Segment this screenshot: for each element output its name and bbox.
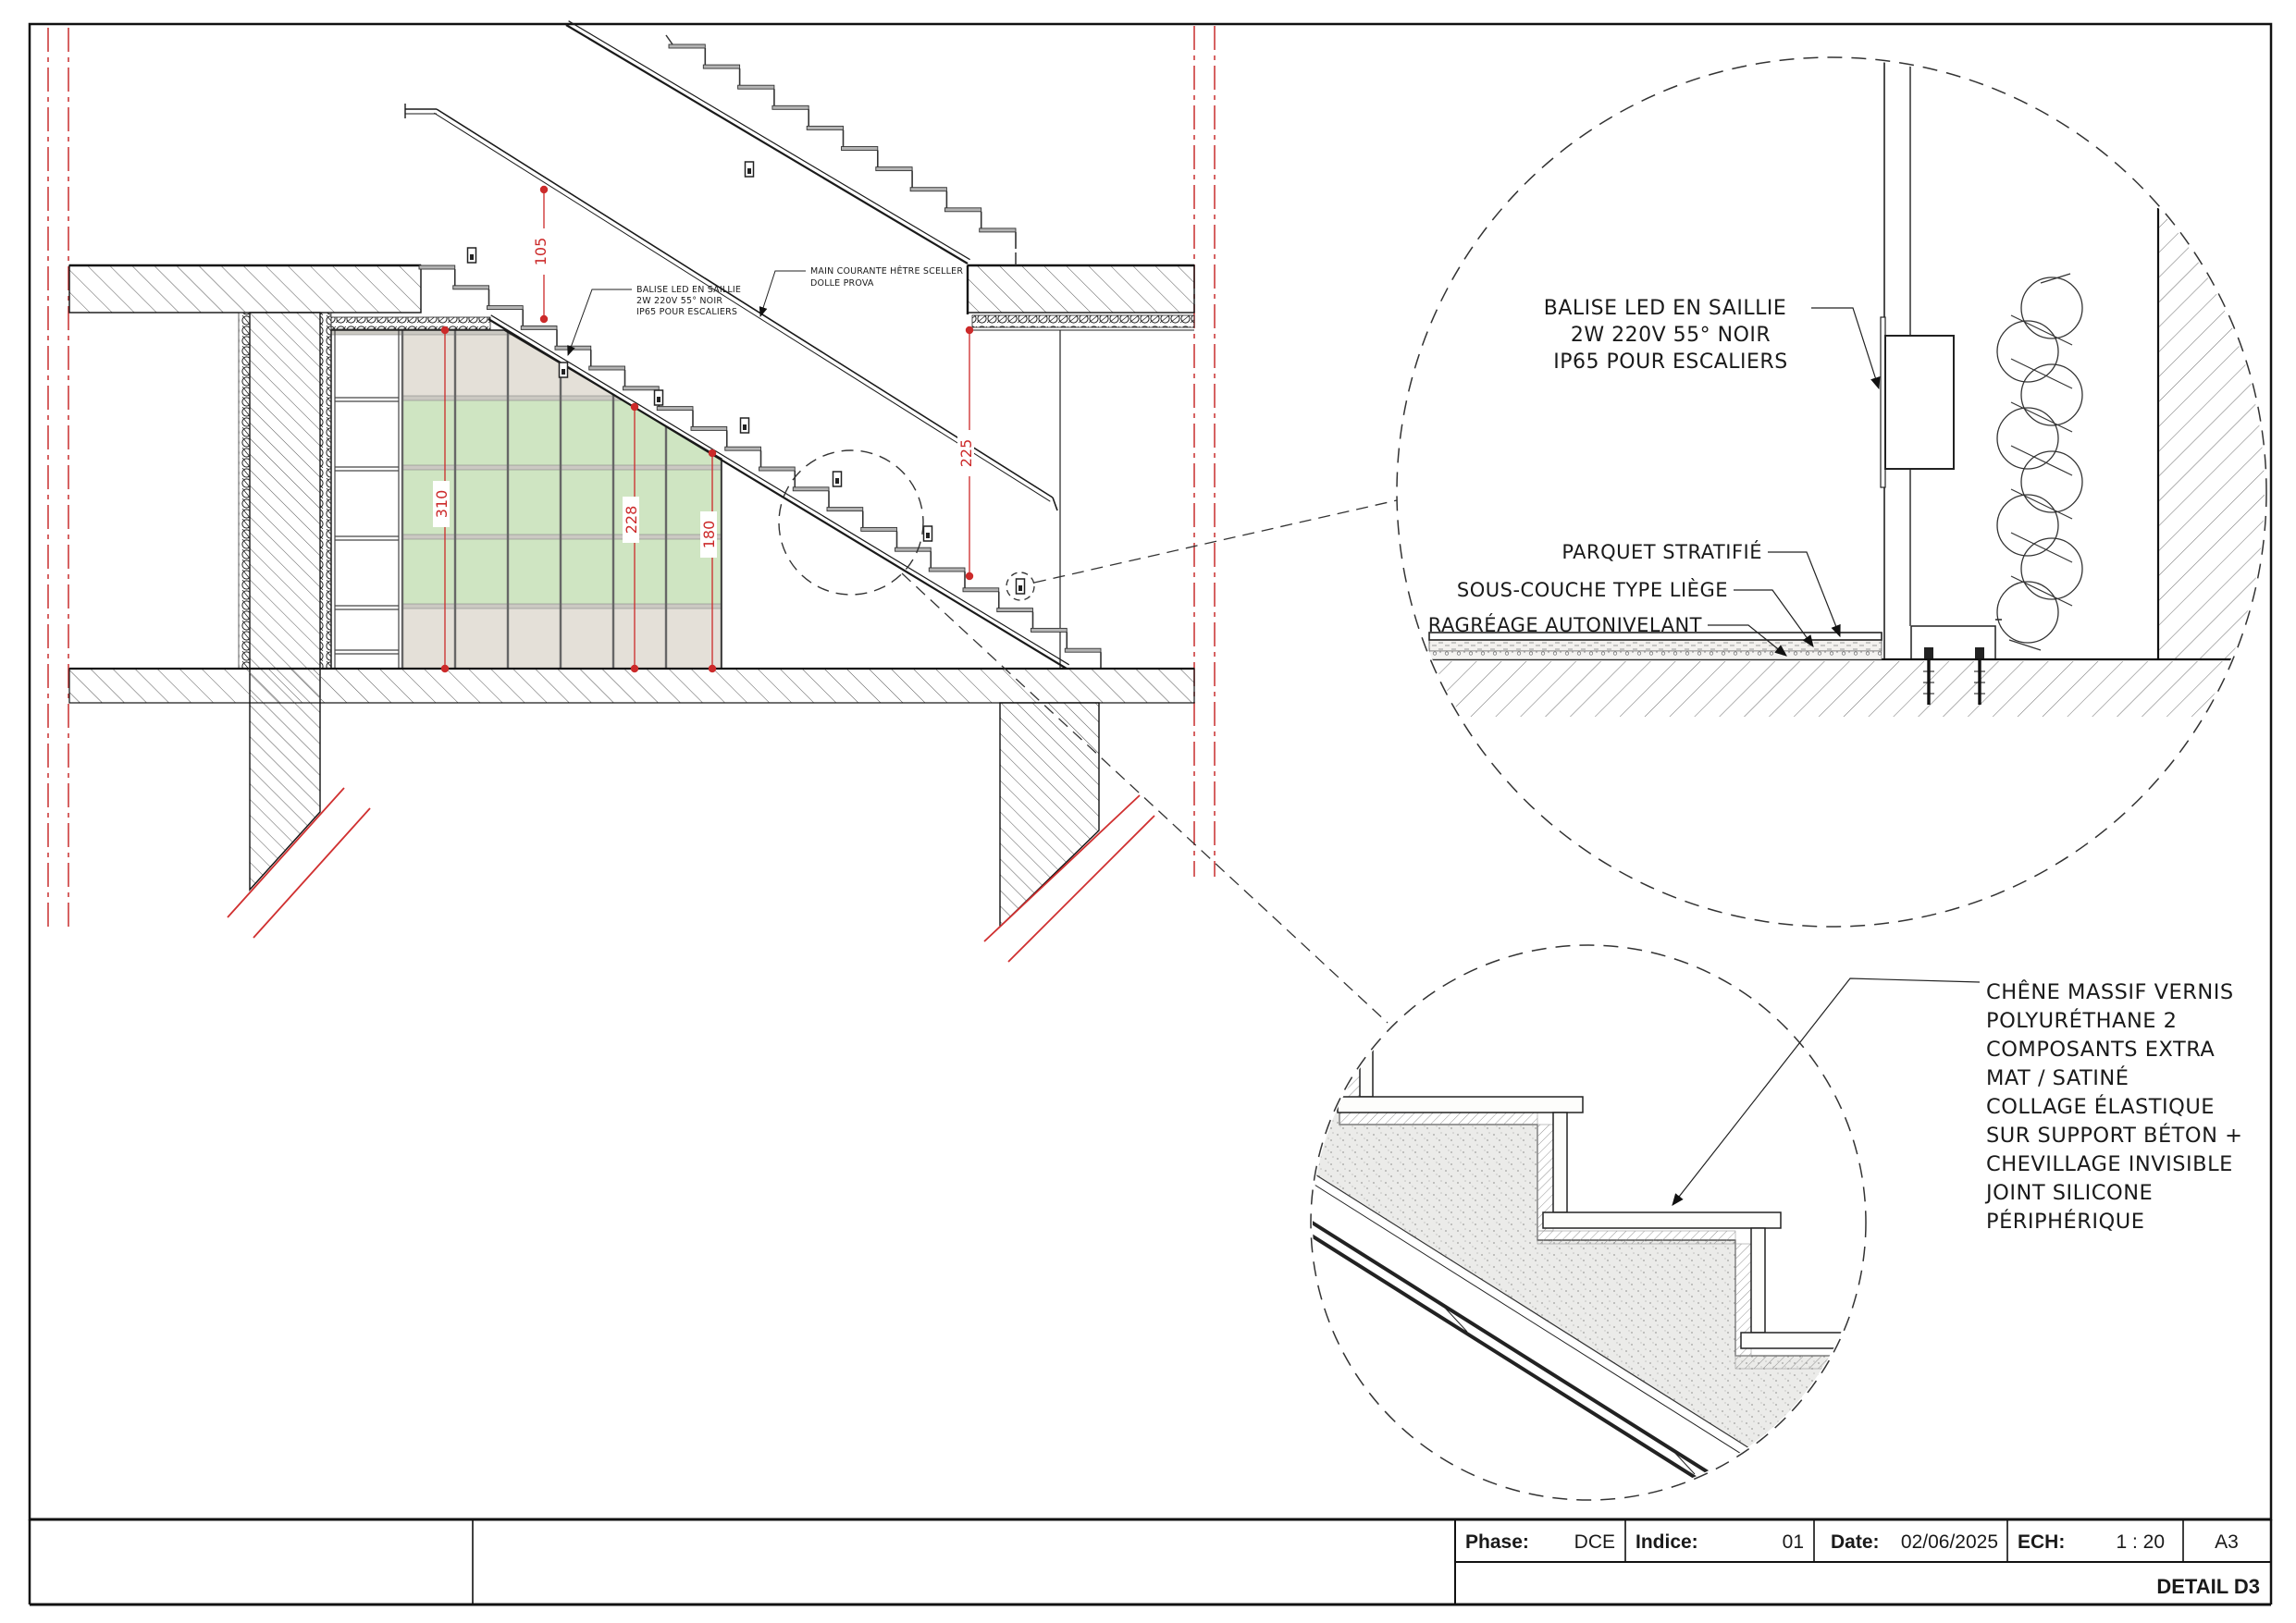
- date-label: Date:: [1831, 1531, 1880, 1553]
- detail-drawing-canvas: 310 228 180 105 225 BALISE LED EN SAILLI…: [0, 0, 2296, 1623]
- note-balise-line3: IP65 POUR ESCALIERS: [636, 307, 737, 317]
- note-mc-line1: MAIN COURANTE HÊTRE SCELLER: [810, 265, 963, 277]
- layer-sous-couche: [1429, 640, 1882, 651]
- label-chene-line5: COLLAGE ÉLASTIQUE: [1986, 1093, 2215, 1119]
- detail-floor-hatch: [1420, 661, 2253, 717]
- tread-board: [1338, 1097, 1583, 1113]
- dim-label-105: 105: [532, 238, 549, 266]
- led-balise-symbol: [655, 390, 663, 405]
- led-balise-symbol: [468, 248, 476, 263]
- label-chene-line1: CHÊNE MASSIF VERNIS: [1986, 978, 2234, 1004]
- label-chene-line3: COMPOSANTS EXTRA: [1986, 1038, 2215, 1062]
- date-value: 02/06/2025: [1901, 1531, 1998, 1553]
- layer-ragreage: [1429, 651, 1882, 659]
- lower-slab: [69, 669, 1194, 703]
- tread-board: [1543, 1212, 1781, 1228]
- led-body: [1885, 336, 1954, 469]
- note-mc-line2: DOLLE PROVA: [810, 278, 874, 289]
- drawing-title: DETAIL D3: [2156, 1575, 2260, 1598]
- label-sous-couche: SOUS-COUCHE TYPE LIÈGE: [1457, 578, 1728, 601]
- label-chene-line8: JOINT SILICONE: [1984, 1181, 2153, 1205]
- label-balise-line3: IP65 POUR ESCALIERS: [1553, 350, 1787, 374]
- led-balise-symbol: [1017, 579, 1025, 594]
- label-chene-line4: MAT / SATINÉ: [1986, 1064, 2129, 1090]
- insulation-band: [331, 317, 490, 329]
- led-balise-symbol: [741, 418, 749, 433]
- label-balise-line2: 2W 220V 55° NOIR: [1571, 324, 1771, 347]
- riser-board: [1751, 1228, 1765, 1333]
- ech-value: 1 : 20: [2116, 1531, 2165, 1553]
- label-chene-line9: PÉRIPHÉRIQUE: [1986, 1208, 2144, 1234]
- indice-label: Indice:: [1636, 1531, 1698, 1553]
- phase-label: Phase:: [1465, 1531, 1529, 1553]
- label-chene-line6: SUR SUPPORT BÉTON +: [1986, 1122, 2242, 1148]
- left-wall: [239, 313, 331, 890]
- phase-value: DCE: [1574, 1531, 1615, 1553]
- format-value: A3: [2215, 1531, 2239, 1553]
- upper-left-slab: [69, 265, 421, 313]
- label-ragreage: RAGRÉAGE AUTONIVELANT: [1428, 613, 1702, 636]
- riser-board: [1553, 1113, 1567, 1212]
- ech-label: ECH:: [2018, 1531, 2065, 1553]
- sheet-background: [0, 0, 2296, 1623]
- label-chene-line7: CHEVILLAGE INVISIBLE: [1986, 1152, 2233, 1176]
- led-balise-symbol: [560, 363, 568, 377]
- dim-label-225: 225: [957, 439, 975, 468]
- label-balise-line1: BALISE LED EN SAILLIE: [1544, 297, 1787, 320]
- note-balise-line2: 2W 220V 55° NOIR: [636, 296, 722, 306]
- label-parquet: PARQUET STRATIFIÉ: [1562, 540, 1762, 563]
- insulation-band: [972, 315, 1194, 327]
- drawing-sheet: 310 228 180 105 225 BALISE LED EN SAILLI…: [0, 0, 2296, 1623]
- led-balise-symbol: [833, 472, 842, 486]
- led-balise-symbol: [924, 526, 932, 541]
- indice-value: 01: [1783, 1531, 1804, 1553]
- insulation-strip: [239, 313, 250, 669]
- note-balise-line1: BALISE LED EN SAILLIE: [636, 285, 741, 295]
- dim-label-310: 310: [433, 490, 451, 519]
- dim-label-228: 228: [623, 506, 640, 535]
- label-chene-line2: POLYURÉTHANE 2: [1986, 1007, 2177, 1033]
- insulation-strip: [320, 313, 331, 669]
- upper-right-slab: [968, 265, 1194, 330]
- dim-label-180: 180: [700, 521, 718, 549]
- led-balise-symbol: [746, 162, 754, 177]
